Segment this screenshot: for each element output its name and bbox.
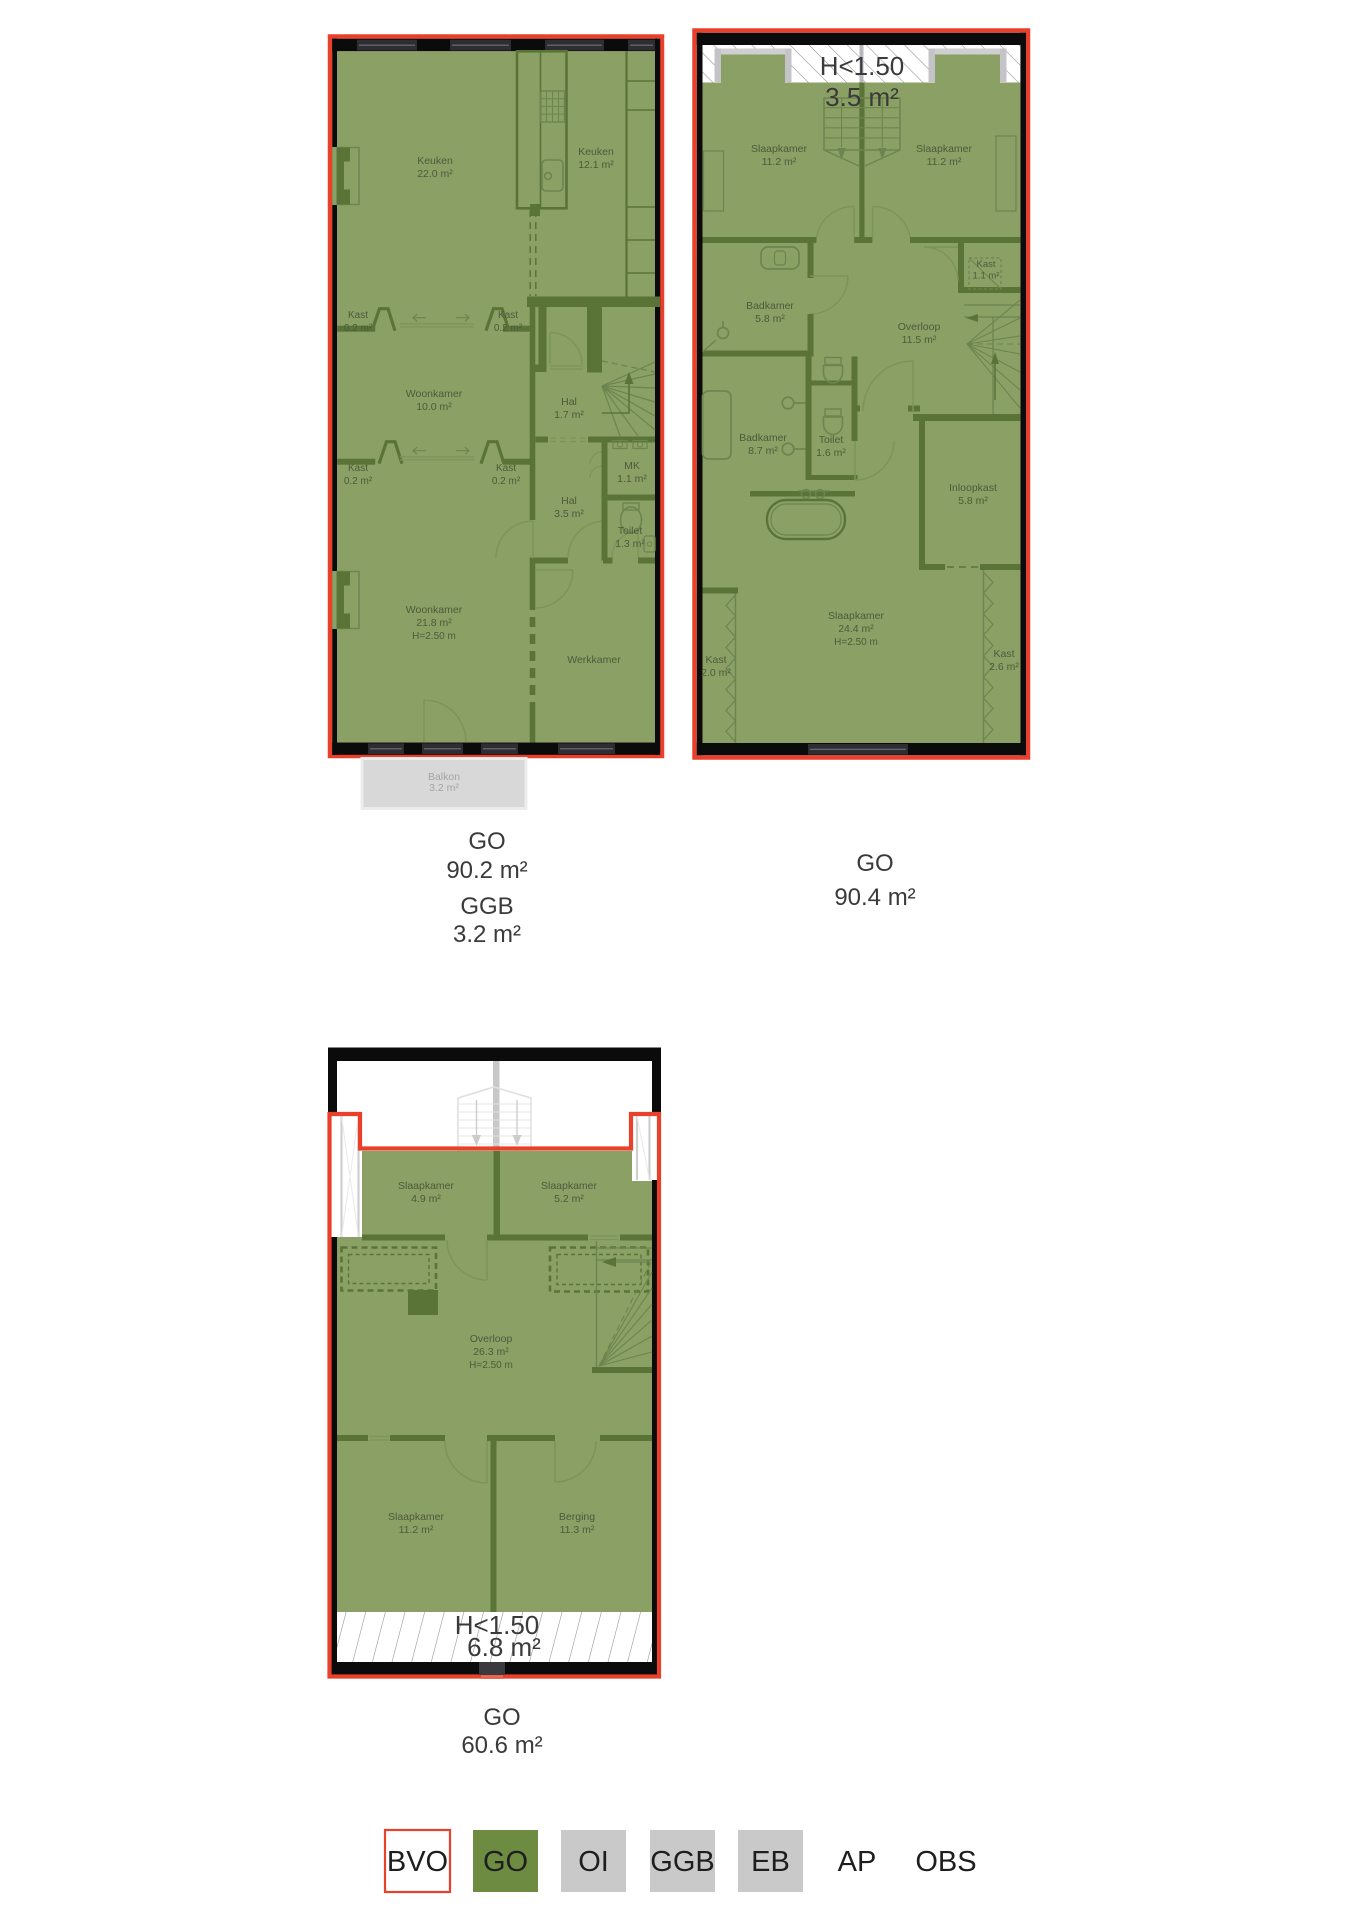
svg-text:11.2 m²: 11.2 m² — [762, 156, 797, 168]
svg-text:5.8 m²: 5.8 m² — [958, 495, 988, 507]
svg-text:Toilet: Toilet — [819, 434, 844, 446]
svg-text:Werkkamer: Werkkamer — [567, 654, 621, 666]
svg-text:3.2 m²: 3.2 m² — [429, 782, 459, 794]
svg-text:GO: GO — [483, 1704, 520, 1731]
svg-text:Hal: Hal — [561, 396, 577, 408]
svg-text:0.2 m²: 0.2 m² — [492, 476, 521, 487]
svg-text:0.2 m²: 0.2 m² — [344, 323, 373, 334]
svg-text:Slaapkamer: Slaapkamer — [751, 143, 808, 155]
svg-text:Woonkamer: Woonkamer — [406, 388, 463, 400]
svg-text:0.2 m²: 0.2 m² — [344, 476, 373, 487]
svg-text:Woonkamer: Woonkamer — [406, 604, 463, 616]
svg-text:21.8 m²: 21.8 m² — [416, 617, 452, 629]
svg-text:5.8 m²: 5.8 m² — [755, 313, 785, 325]
svg-text:MK: MK — [624, 460, 640, 472]
svg-text:4.9 m²: 4.9 m² — [411, 1193, 441, 1205]
svg-text:Berging: Berging — [559, 1511, 595, 1523]
svg-text:24.4 m²: 24.4 m² — [838, 623, 874, 635]
svg-text:11.2 m²: 11.2 m² — [927, 156, 962, 168]
svg-text:60.6 m²: 60.6 m² — [461, 1732, 542, 1759]
svg-text:BVO: BVO — [387, 1846, 448, 1878]
svg-text:12.1 m²: 12.1 m² — [578, 159, 614, 171]
svg-text:Badkamer: Badkamer — [739, 432, 787, 444]
svg-text:5.2 m²: 5.2 m² — [554, 1193, 584, 1205]
svg-text:GGB: GGB — [650, 1846, 714, 1878]
svg-text:Slaapkamer: Slaapkamer — [388, 1511, 445, 1523]
svg-text:3.5 m²: 3.5 m² — [554, 508, 584, 520]
svg-text:Slaapkamer: Slaapkamer — [916, 143, 973, 155]
svg-text:26.3 m²: 26.3 m² — [473, 1346, 509, 1358]
svg-text:10.0 m²: 10.0 m² — [416, 401, 452, 413]
svg-text:GO: GO — [856, 850, 893, 877]
svg-text:22.0 m²: 22.0 m² — [417, 168, 453, 180]
svg-text:Kast: Kast — [993, 648, 1014, 660]
svg-text:Overloop: Overloop — [898, 321, 941, 333]
svg-text:Kast: Kast — [705, 654, 726, 666]
svg-text:3.2 m²: 3.2 m² — [453, 921, 521, 948]
svg-text:H=2.50 m: H=2.50 m — [469, 1360, 513, 1371]
svg-text:2.6 m²: 2.6 m² — [989, 661, 1019, 673]
svg-text:11.2 m²: 11.2 m² — [399, 1524, 434, 1536]
svg-text:Toilet: Toilet — [618, 525, 643, 537]
svg-text:3.5 m²: 3.5 m² — [825, 82, 899, 112]
svg-text:6.8 m²: 6.8 m² — [467, 1632, 541, 1662]
svg-text:OI: OI — [578, 1846, 609, 1878]
svg-text:Slaapkamer: Slaapkamer — [541, 1180, 598, 1192]
svg-text:90.2 m²: 90.2 m² — [446, 857, 527, 884]
svg-text:8.7 m²: 8.7 m² — [748, 445, 778, 457]
svg-text:Slaapkamer: Slaapkamer — [398, 1180, 455, 1192]
svg-text:Kast: Kast — [348, 463, 368, 474]
svg-text:Slaapkamer: Slaapkamer — [828, 610, 885, 622]
svg-text:Kast: Kast — [498, 310, 518, 321]
svg-text:Kast: Kast — [348, 310, 368, 321]
svg-text:1.1 m²: 1.1 m² — [617, 473, 647, 485]
svg-text:1.3 m²: 1.3 m² — [615, 538, 645, 550]
svg-text:GO: GO — [483, 1846, 528, 1878]
svg-text:EB: EB — [751, 1846, 790, 1878]
svg-text:Kast: Kast — [976, 259, 995, 270]
svg-text:Keuken: Keuken — [417, 155, 453, 167]
svg-text:OBS: OBS — [915, 1846, 976, 1878]
svg-text:GO: GO — [468, 828, 505, 855]
svg-text:Kast: Kast — [496, 463, 516, 474]
svg-text:1.7 m²: 1.7 m² — [554, 409, 584, 421]
svg-text:0.2 m²: 0.2 m² — [494, 323, 523, 334]
svg-text:Hal: Hal — [561, 495, 577, 507]
svg-text:2.0 m²: 2.0 m² — [701, 667, 731, 679]
svg-text:1.1 m²: 1.1 m² — [973, 271, 1000, 282]
svg-text:90.4 m²: 90.4 m² — [834, 884, 915, 911]
svg-text:Keuken: Keuken — [578, 146, 614, 158]
svg-text:11.5 m²: 11.5 m² — [902, 334, 937, 346]
svg-text:AP: AP — [838, 1846, 877, 1878]
svg-text:11.3 m²: 11.3 m² — [560, 1524, 595, 1536]
svg-text:Inloopkast: Inloopkast — [949, 482, 997, 494]
svg-text:1.6 m²: 1.6 m² — [816, 447, 846, 459]
svg-text:GGB: GGB — [460, 893, 513, 920]
svg-text:H=2.50 m: H=2.50 m — [412, 631, 456, 642]
svg-text:Badkamer: Badkamer — [746, 300, 794, 312]
svg-text:Overloop: Overloop — [470, 1333, 513, 1345]
svg-text:H<1.50: H<1.50 — [820, 51, 905, 81]
svg-text:H=2.50 m: H=2.50 m — [834, 637, 878, 648]
